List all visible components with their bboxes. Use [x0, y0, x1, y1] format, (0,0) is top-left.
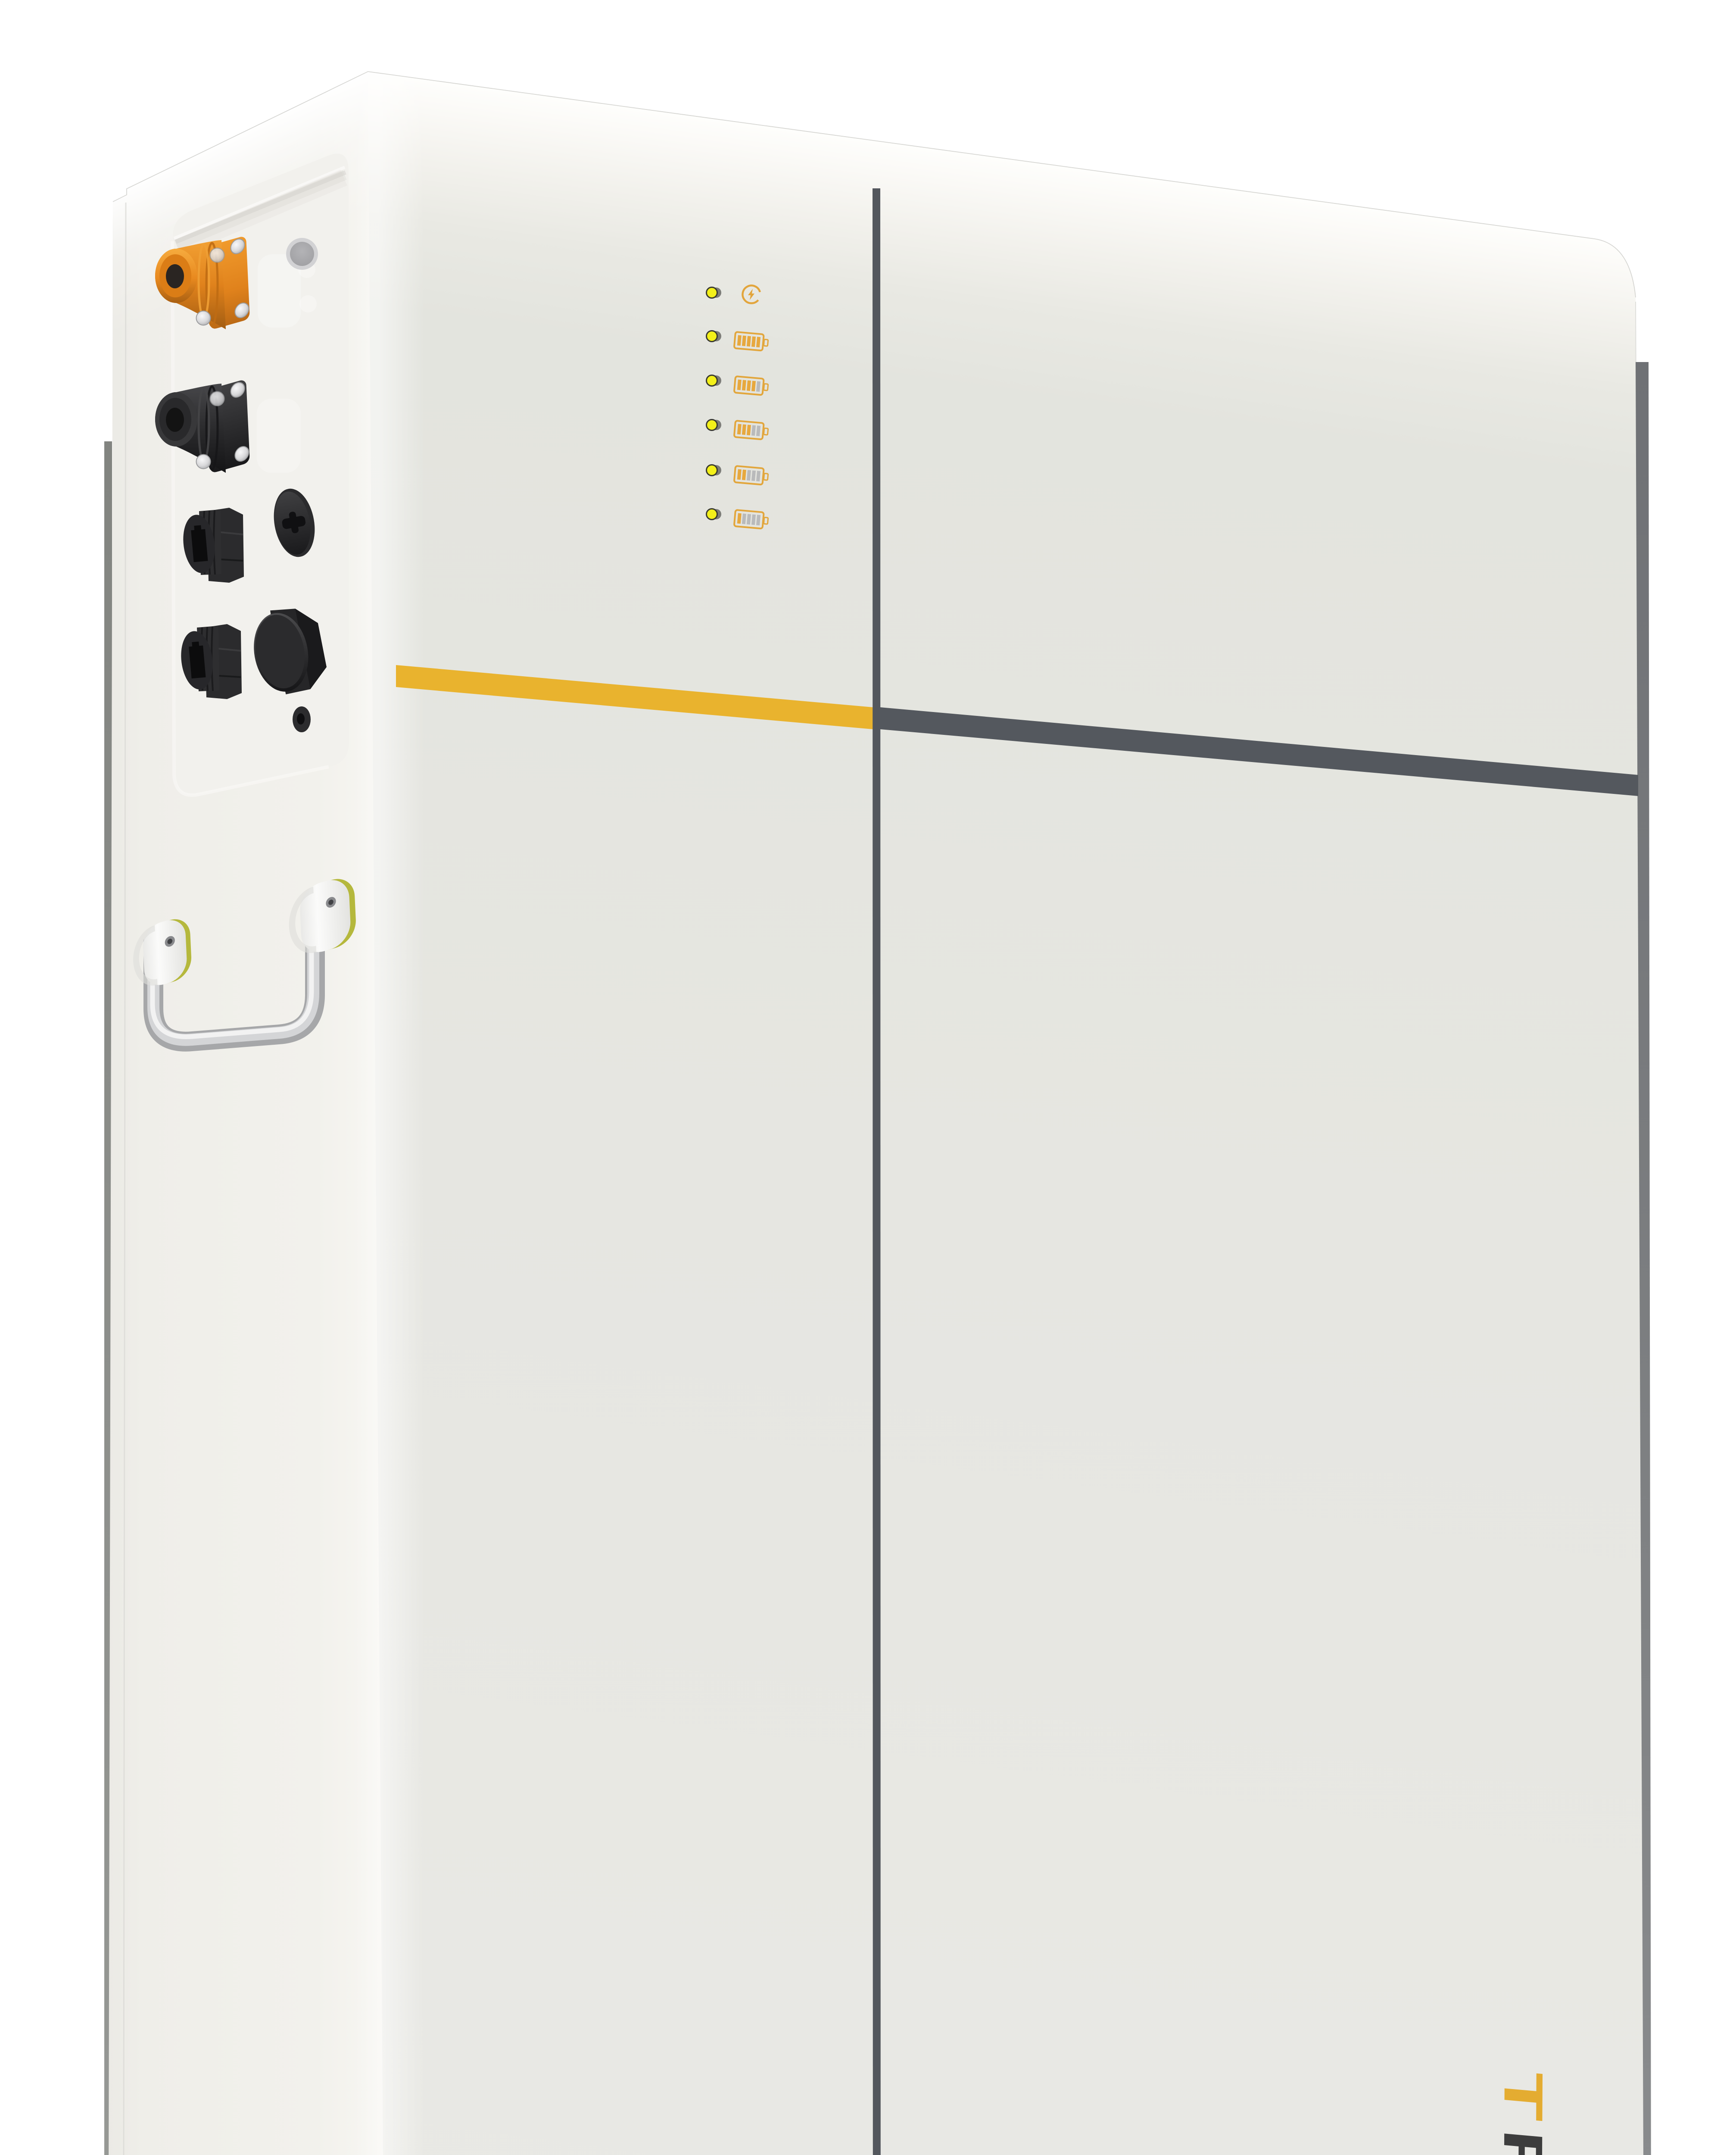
svg-text:TRIPL: TRIPL [1491, 2069, 1554, 2155]
